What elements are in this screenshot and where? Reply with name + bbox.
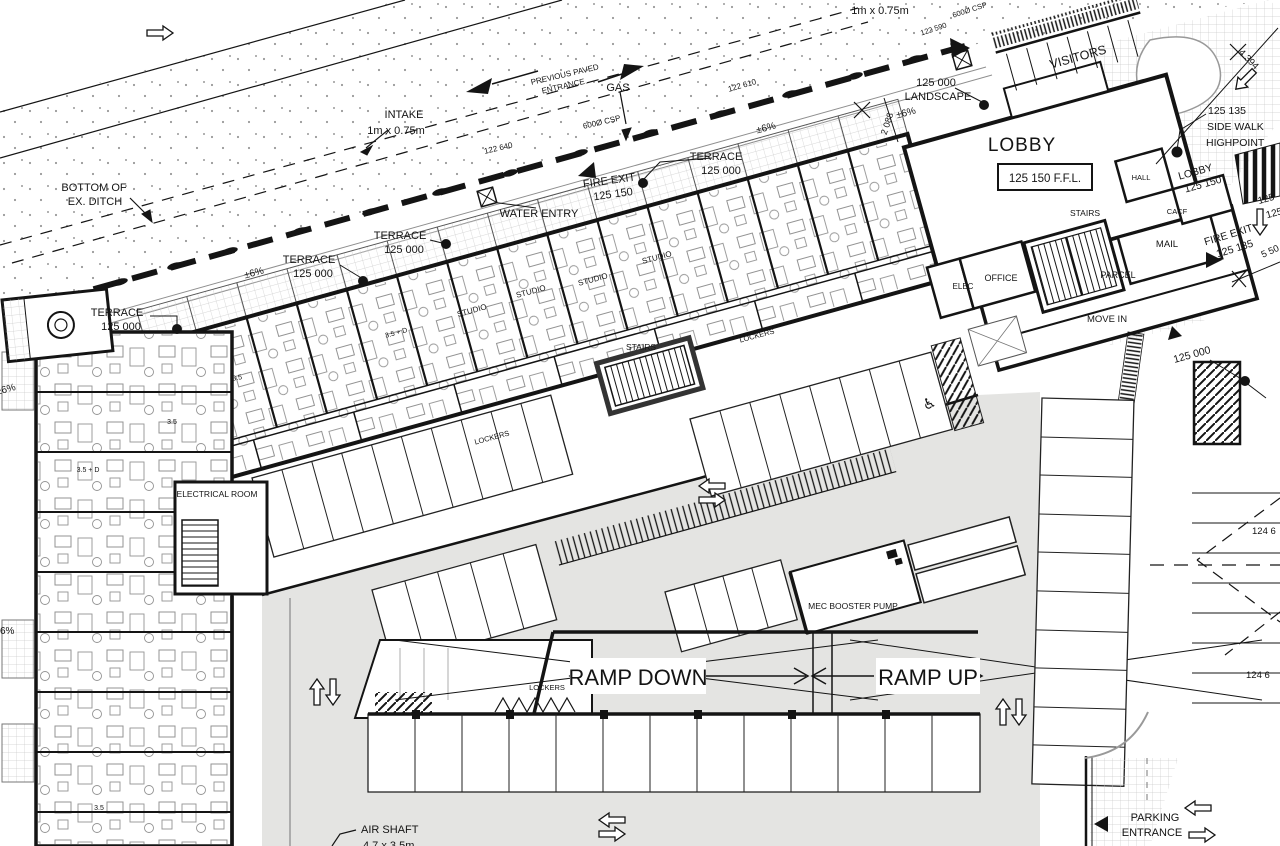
terrace-level: 125 000 [701,165,741,177]
terrace-label: TERRACE [91,307,144,319]
terrace-label: TERRACE [690,151,743,163]
edge-level: 125 [1265,206,1280,221]
cacf-label: CACF [1167,207,1188,216]
ditch-label-1: BOTTOM OF [61,182,126,194]
move-in-label: MOVE IN [1087,314,1127,325]
office-label: OFFICE [985,273,1018,283]
mec-label: MEC BOOSTER PUMP [808,601,898,611]
intake-label: INTAKE [385,109,424,121]
mail-label: MAIL [1156,239,1178,250]
ramp-down-label: RAMP DOWN [569,665,708,690]
landscape-label: LANDSCAPE [905,91,972,103]
ditch-label-2: EX. DITCH [68,196,122,208]
landscape-level: 125 000 [916,77,956,89]
terrace-label: TERRACE [374,230,427,242]
highpoint-label: HIGHPOINT [1206,137,1265,149]
slope-label-cut: 6% [0,626,15,637]
parking-entrance-label: ENTRANCE [1122,827,1183,839]
elec-label: ELEC [953,282,974,291]
garden-structure [2,289,113,362]
terrace-level: 125 000 [293,268,333,280]
floor-plan-svg: ♿ [0,0,1280,846]
intake-size: 1m x 0.75m [367,125,424,137]
ffl-label: 125 150 F.F.L. [1009,173,1081,185]
lobby-title: LOBBY [988,135,1056,156]
unit-type-label: 3.5 [94,805,104,812]
unit-type-label: 3.5 [167,419,177,426]
electrical-room-label: ELECTRICAL ROOM [177,489,258,499]
dim-5-50: 5 50 [1260,243,1280,261]
gas-label: GAS [606,82,629,94]
parcel-label: PARCEL [1100,270,1135,280]
hall-label: HALL [1132,173,1151,182]
edge-124-level: 124 6 [1252,526,1276,537]
stairs-label: STAIRS [1070,208,1100,218]
water-entry-label: WATER ENTRY [500,208,579,220]
air-shaft-size: 4.7 x 3.5m [363,840,414,846]
electrical-stairs [182,520,218,586]
ramp-up-label: RAMP UP [878,665,978,690]
lockers-label: LOCKERS [529,683,565,692]
terrace-level: 125 000 [101,321,141,333]
floor-plan: ♿ [0,0,1280,846]
basement-parking-band [368,710,980,792]
sidewalk-label: SIDE WALK [1207,121,1264,133]
sidewalk-level: 125 135 [1208,105,1246,117]
edge-124-level: 124 6 [1246,670,1270,681]
direction-arrow [147,26,173,40]
stairs-label: STAIRS [626,342,656,352]
east-parking-column [1032,398,1134,786]
air-shaft-label: AIR SHAFT [361,824,419,836]
unit-type-label: 3.5 + D [77,467,100,474]
duct-size-label: 1m x 0.75m [851,5,908,17]
terrace-level: 125 000 [384,244,424,256]
terrace-label: TERRACE [283,254,336,266]
patio [2,724,34,782]
fire-exit-arrow [578,162,596,178]
parking-label: PARKING [1131,812,1180,824]
